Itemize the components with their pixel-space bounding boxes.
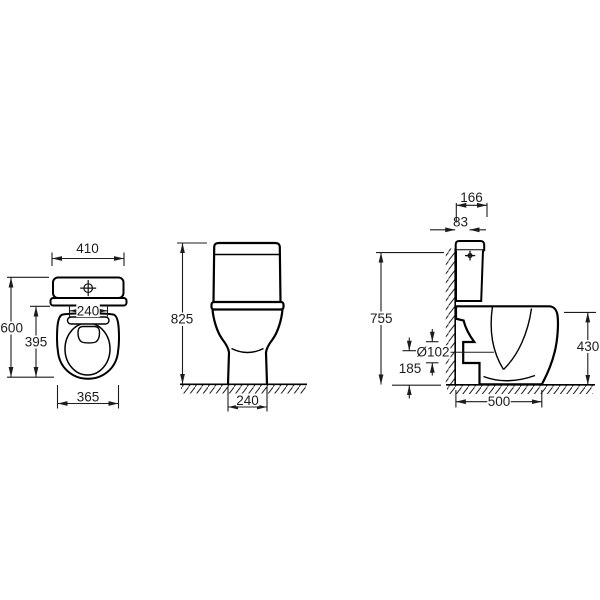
dim-label-500: 500 (488, 394, 511, 409)
dim-label-outlet-diameter: Ø102 (416, 345, 449, 360)
front-view-bowl-deck-outline (212, 302, 284, 310)
dim-label-240-top: 240 (77, 303, 100, 318)
dim-label-240-front: 240 (236, 393, 259, 408)
dim-label-825: 825 (171, 312, 194, 327)
front-view-bowl-right-profile (266, 310, 283, 385)
side-view-cistern-lid-outline (456, 241, 485, 250)
side-ground-hatch (447, 386, 593, 395)
dim-label-166: 166 (460, 190, 483, 205)
product-dimension-diagram: 410 240 600 395 (0, 0, 600, 600)
top-view: 410 240 600 395 (0, 241, 127, 409)
dim-label-395: 395 (25, 335, 48, 350)
side-view-bowl-outline (456, 306, 558, 384)
front-view: 825 240 (171, 243, 307, 412)
dim-label-83: 83 (453, 214, 468, 229)
dim-label-365: 365 (77, 390, 100, 405)
wall-hatch (446, 249, 455, 385)
top-view-water-area (78, 327, 100, 343)
front-view-bowl-left-profile (213, 310, 230, 385)
dim-label-185: 185 (399, 361, 422, 376)
technical-drawing-canvas: 410 240 600 395 (0, 0, 600, 600)
front-view-cistern-outline (214, 243, 281, 302)
front-view-bowl-bottom-arc (232, 349, 264, 353)
side-view: 166 83 755 Ø102 185 (370, 190, 600, 409)
dim-label-755: 755 (370, 311, 393, 326)
dim-label-410: 410 (76, 241, 99, 256)
dim-label-600: 600 (0, 321, 23, 336)
dim-label-430: 430 (577, 339, 600, 354)
